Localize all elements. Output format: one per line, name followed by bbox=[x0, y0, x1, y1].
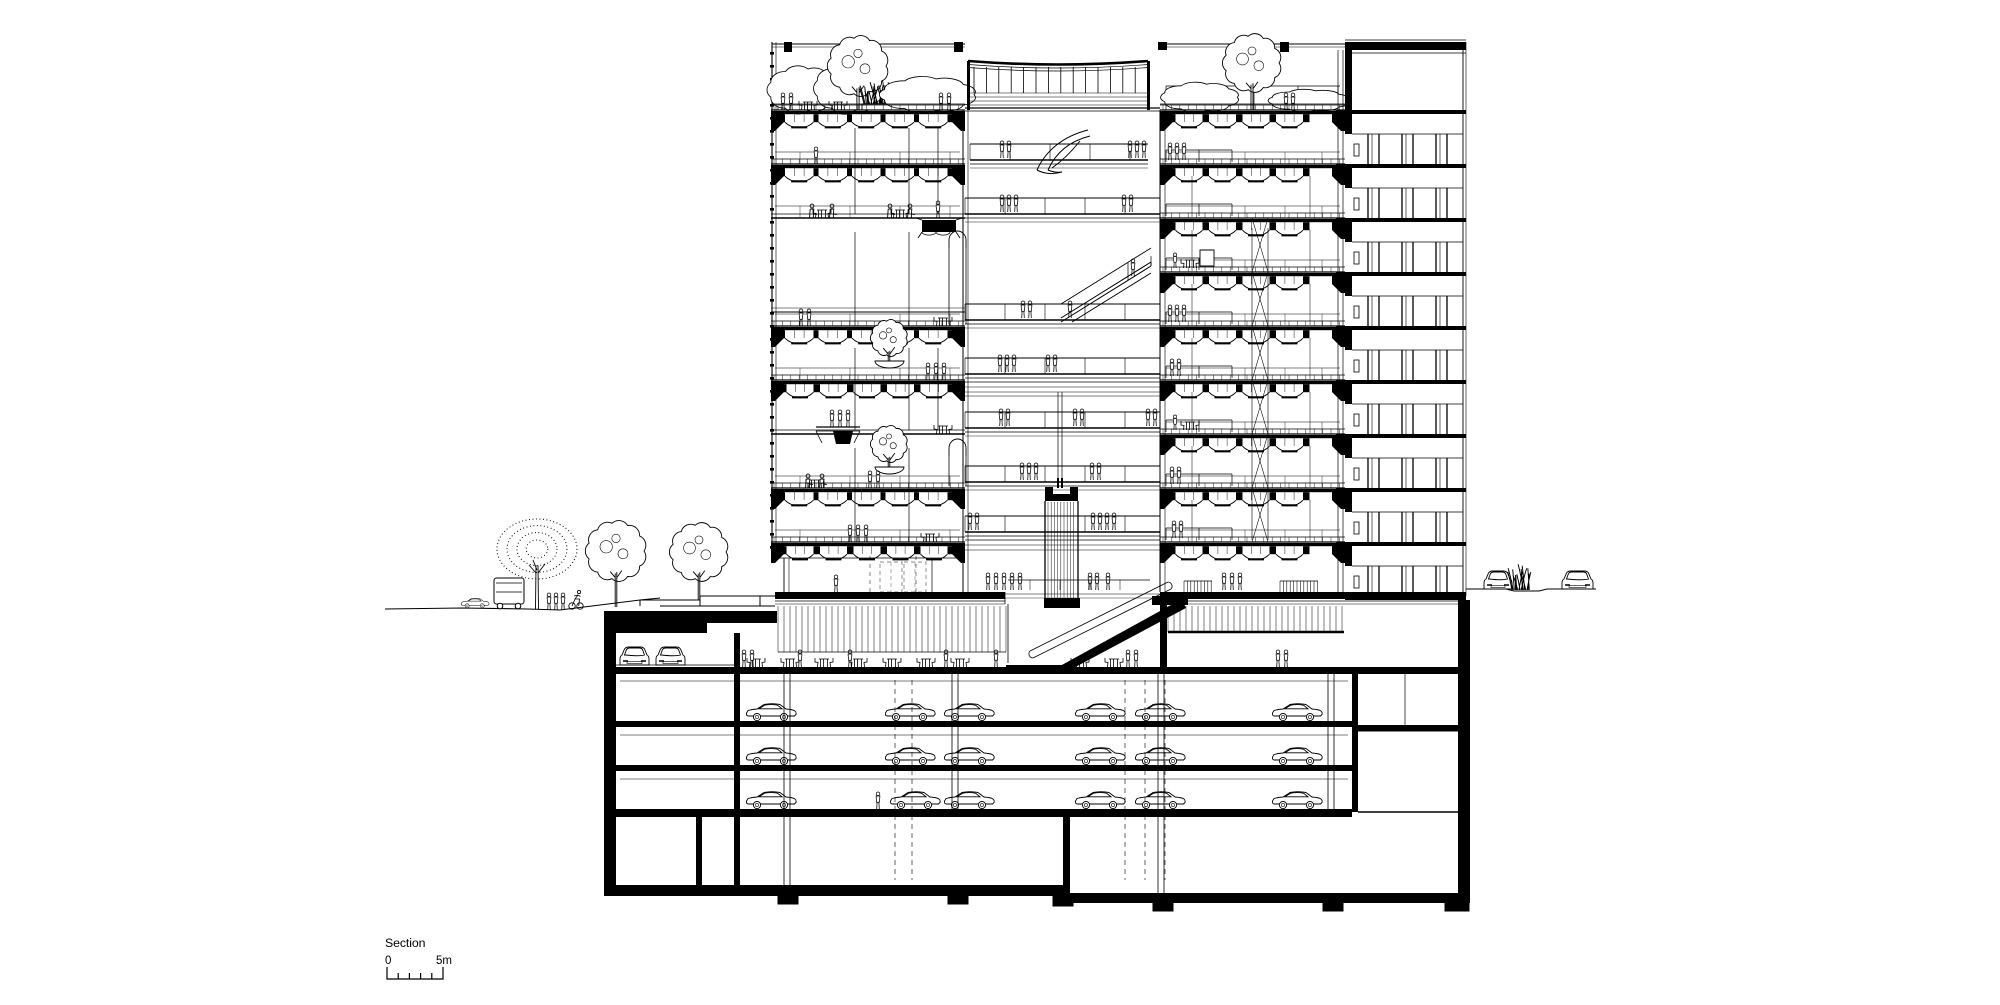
svg-text:5m: 5m bbox=[436, 955, 452, 967]
svg-text:0: 0 bbox=[385, 955, 391, 967]
svg-text:Section: Section bbox=[385, 936, 426, 950]
